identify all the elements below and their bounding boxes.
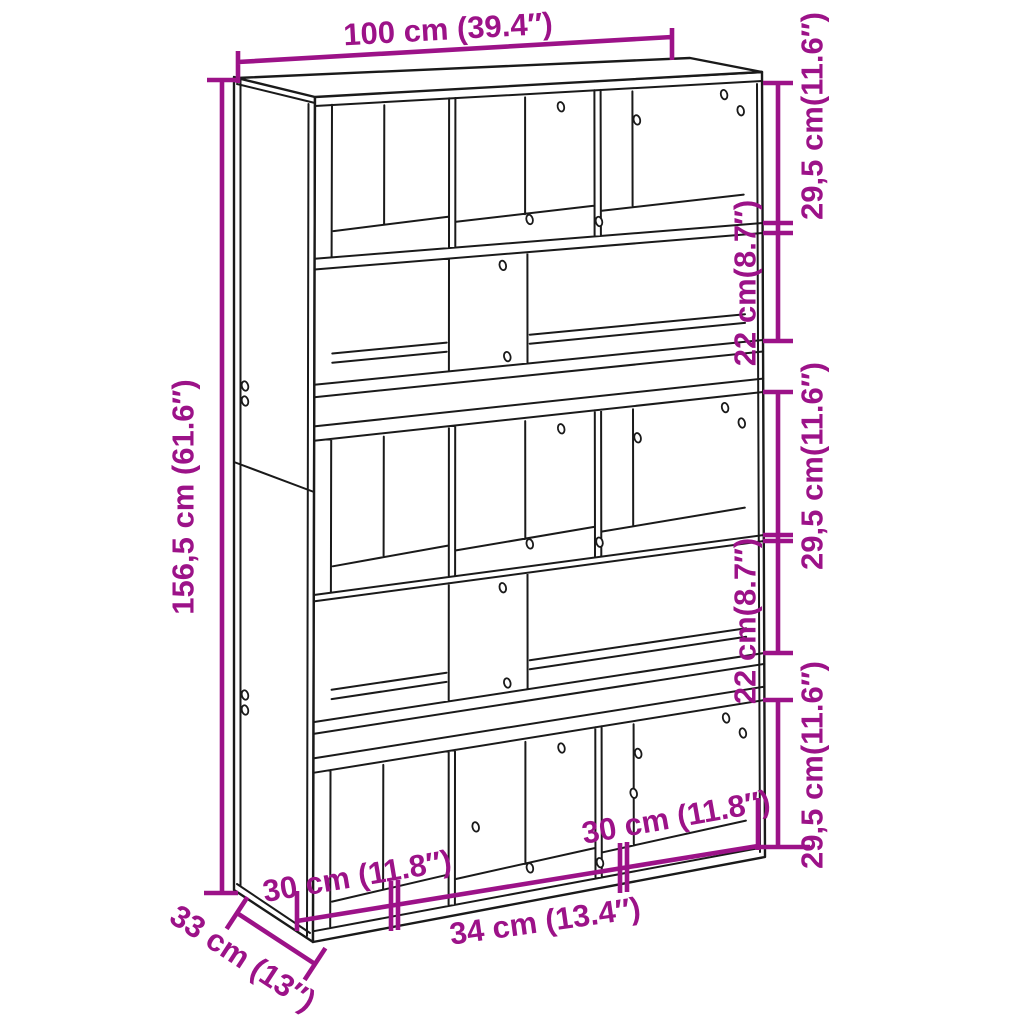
right-section-label-2: 22 cm(8.7″) xyxy=(728,200,763,367)
right-section-label-4: 22 cm(8.7″) xyxy=(728,538,763,705)
right-section-label-3: 29,5 cm(11.6″) xyxy=(795,362,830,570)
height-dimension-label: 156,5 cm (61.6″) xyxy=(166,379,201,614)
right-section-label-5: 29,5 cm(11.6″) xyxy=(795,661,830,869)
product-dimension-diagram: 100 cm (39.4″) 156,5 cm (61.6″) 29,5 cm(… xyxy=(0,0,1024,1024)
right-section-label-1: 29,5 cm(11.6″) xyxy=(795,12,830,220)
diagram-canvas: 100 cm (39.4″) 156,5 cm (61.6″) 29,5 cm(… xyxy=(0,0,1024,1024)
